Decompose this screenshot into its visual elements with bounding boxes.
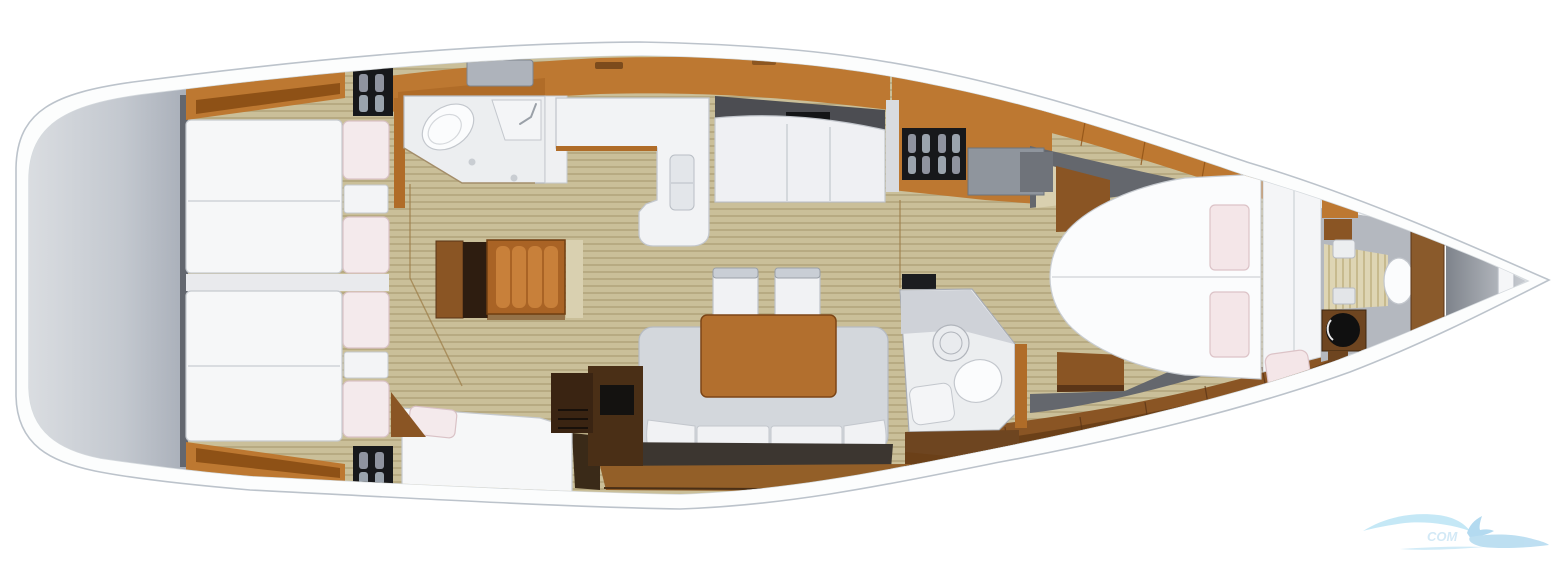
svg-text:COM: COM xyxy=(1427,529,1459,544)
